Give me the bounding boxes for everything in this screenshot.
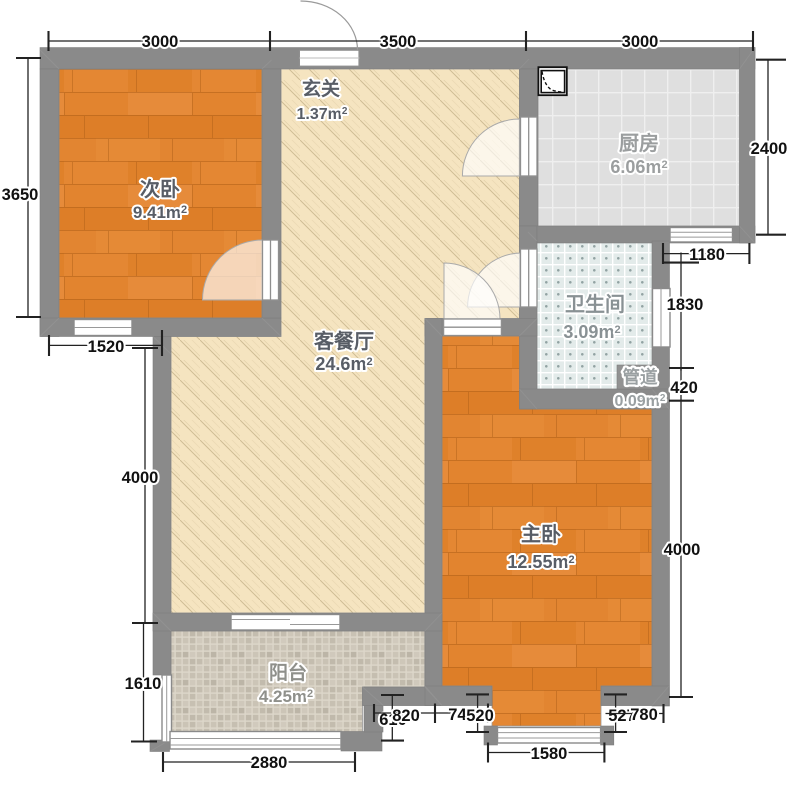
svg-text:1580: 1580 [531,745,568,763]
svg-text:玄关: 玄关 [302,77,340,100]
svg-text:次卧: 次卧 [140,177,180,201]
svg-text:1830: 1830 [667,296,704,314]
svg-text:3000: 3000 [142,33,179,51]
svg-text:1180: 1180 [689,246,725,264]
svg-text:0.09m2: 0.09m2 [615,393,666,410]
svg-text:4.25m2: 4.25m2 [259,687,313,706]
svg-text:3.09m2: 3.09m2 [563,322,620,342]
svg-text:3500: 3500 [380,33,417,51]
svg-text:厨房: 厨房 [619,131,659,155]
svg-text:820: 820 [392,707,420,725]
svg-text:420: 420 [670,379,698,397]
svg-text:780: 780 [630,706,658,724]
svg-text:9.41m2: 9.41m2 [133,203,187,222]
svg-text:4000: 4000 [664,541,701,559]
svg-text:卫生间: 卫生间 [565,293,625,316]
svg-text:1520: 1520 [88,338,125,356]
svg-text:520: 520 [466,707,494,725]
svg-text:1610: 1610 [125,675,162,693]
svg-text:3000: 3000 [622,33,659,51]
svg-text:6.06m2: 6.06m2 [610,157,667,177]
svg-text:管道: 管道 [623,367,658,387]
svg-text:客餐厅: 客餐厅 [313,329,374,353]
svg-text:4000: 4000 [122,469,159,487]
svg-text:主卧: 主卧 [521,522,561,546]
svg-text:12.55m2: 12.55m2 [507,552,574,572]
svg-text:24.6m2: 24.6m2 [315,354,372,374]
svg-text:1.37m2: 1.37m2 [297,106,348,123]
svg-text:2400: 2400 [751,140,788,158]
svg-text:2880: 2880 [251,754,288,772]
svg-text:阳台: 阳台 [269,661,307,684]
svg-text:3650: 3650 [2,186,39,204]
